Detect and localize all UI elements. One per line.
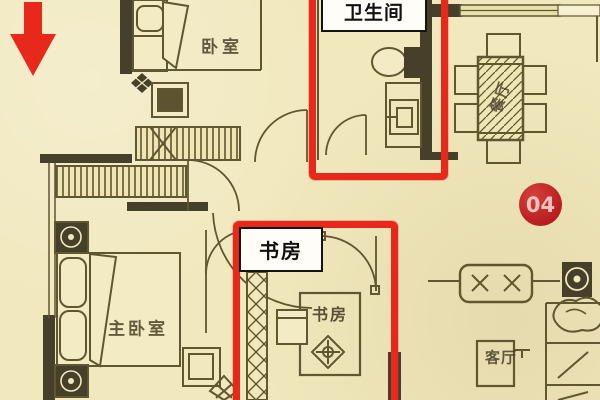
study-room-label: 书房: [312, 301, 348, 325]
master-bedroom-furniture: [55, 222, 238, 400]
bedroom-room-label: 卧室: [201, 33, 243, 58]
side-table: [183, 348, 220, 386]
floor-plan: 卫生间 书房 卧室 主卧室 书房 餐厅 客厅 04: [0, 0, 600, 400]
study-label-tag: 书房: [239, 227, 323, 272]
unit-number-badge: 04: [519, 183, 562, 226]
bedroom-furniture: [131, 0, 261, 117]
dresser: [152, 83, 188, 117]
bed: [57, 253, 180, 366]
sofa: [428, 265, 560, 302]
bathroom-label-text: 卫生间: [344, 0, 404, 25]
living-room-furniture: [428, 262, 600, 400]
speaker-icon: [562, 262, 592, 297]
lamp-icon: [131, 73, 153, 93]
nightstand-lamp-icon: [55, 365, 88, 397]
study-label-text: 书房: [259, 235, 303, 264]
master-bedroom-room-label: 主卧室: [108, 315, 168, 340]
nightstand-lamp-icon: [55, 222, 88, 253]
red-down-arrow-icon: [0, 0, 70, 80]
living-room-label: 客厅: [485, 347, 517, 368]
bathroom-label-tag: 卫生间: [321, 0, 427, 32]
